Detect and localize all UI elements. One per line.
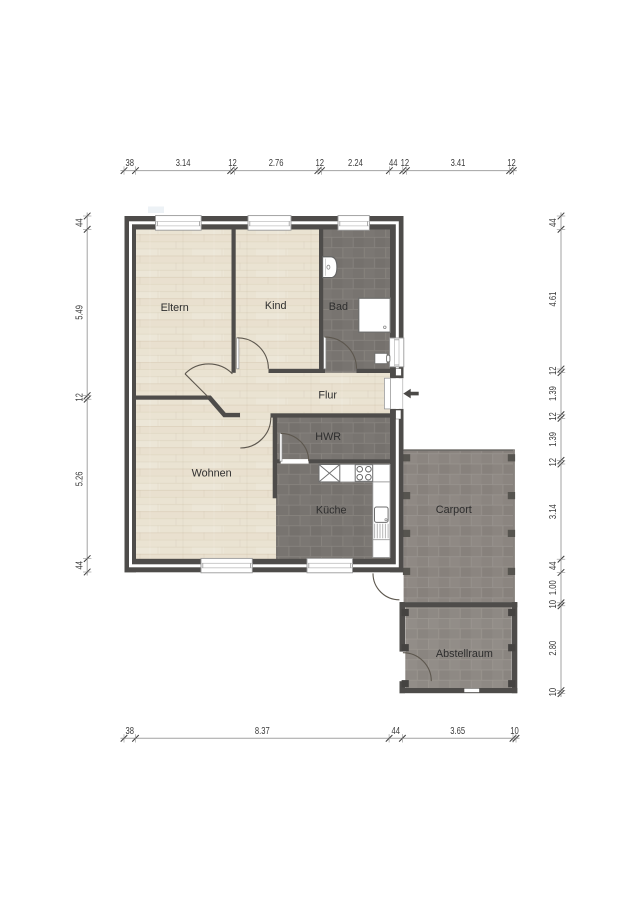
svg-text:1.00: 1.00 bbox=[548, 580, 559, 595]
svg-text:38: 38 bbox=[125, 726, 134, 737]
svg-text:4.61: 4.61 bbox=[548, 291, 559, 306]
svg-text:44: 44 bbox=[391, 726, 400, 737]
svg-text:12: 12 bbox=[507, 158, 516, 169]
svg-text:44: 44 bbox=[548, 561, 559, 570]
svg-text:Bad: Bad bbox=[329, 301, 348, 313]
svg-text:44: 44 bbox=[389, 158, 398, 169]
svg-text:12: 12 bbox=[548, 366, 559, 375]
svg-text:1.39: 1.39 bbox=[548, 386, 559, 401]
svg-text:12: 12 bbox=[548, 458, 559, 467]
svg-text:10: 10 bbox=[548, 600, 559, 609]
svg-text:44: 44 bbox=[74, 561, 85, 570]
svg-text:3.41: 3.41 bbox=[451, 158, 466, 169]
svg-text:2.80: 2.80 bbox=[548, 640, 559, 655]
svg-text:Abstellraum: Abstellraum bbox=[436, 648, 493, 660]
svg-text:3.65: 3.65 bbox=[450, 726, 465, 737]
svg-text:44: 44 bbox=[548, 218, 559, 227]
svg-text:12: 12 bbox=[315, 158, 324, 169]
svg-text:3.14: 3.14 bbox=[548, 504, 559, 519]
svg-text:5.26: 5.26 bbox=[74, 471, 85, 486]
svg-text:HWR: HWR bbox=[315, 431, 341, 443]
svg-text:Kind: Kind bbox=[265, 300, 287, 312]
svg-text:10: 10 bbox=[510, 726, 519, 737]
svg-text:2.24: 2.24 bbox=[348, 158, 363, 169]
svg-text:8.37: 8.37 bbox=[255, 726, 270, 737]
svg-text:12: 12 bbox=[228, 158, 237, 169]
svg-text:12: 12 bbox=[74, 393, 85, 402]
svg-text:44: 44 bbox=[74, 218, 85, 227]
svg-text:2.76: 2.76 bbox=[269, 158, 284, 169]
svg-text:Küche: Küche bbox=[316, 505, 347, 517]
svg-text:Flur: Flur bbox=[318, 389, 337, 401]
svg-text:Carport: Carport bbox=[436, 504, 472, 516]
svg-text:10: 10 bbox=[548, 688, 559, 697]
svg-text:12: 12 bbox=[548, 412, 559, 421]
svg-text:1.39: 1.39 bbox=[548, 432, 559, 447]
svg-text:3.14: 3.14 bbox=[176, 158, 191, 169]
svg-text:5.49: 5.49 bbox=[74, 305, 85, 320]
svg-text:Wohnen: Wohnen bbox=[192, 467, 232, 479]
svg-text:12: 12 bbox=[401, 158, 410, 169]
svg-text:Eltern: Eltern bbox=[161, 302, 189, 314]
svg-text:38: 38 bbox=[125, 158, 134, 169]
